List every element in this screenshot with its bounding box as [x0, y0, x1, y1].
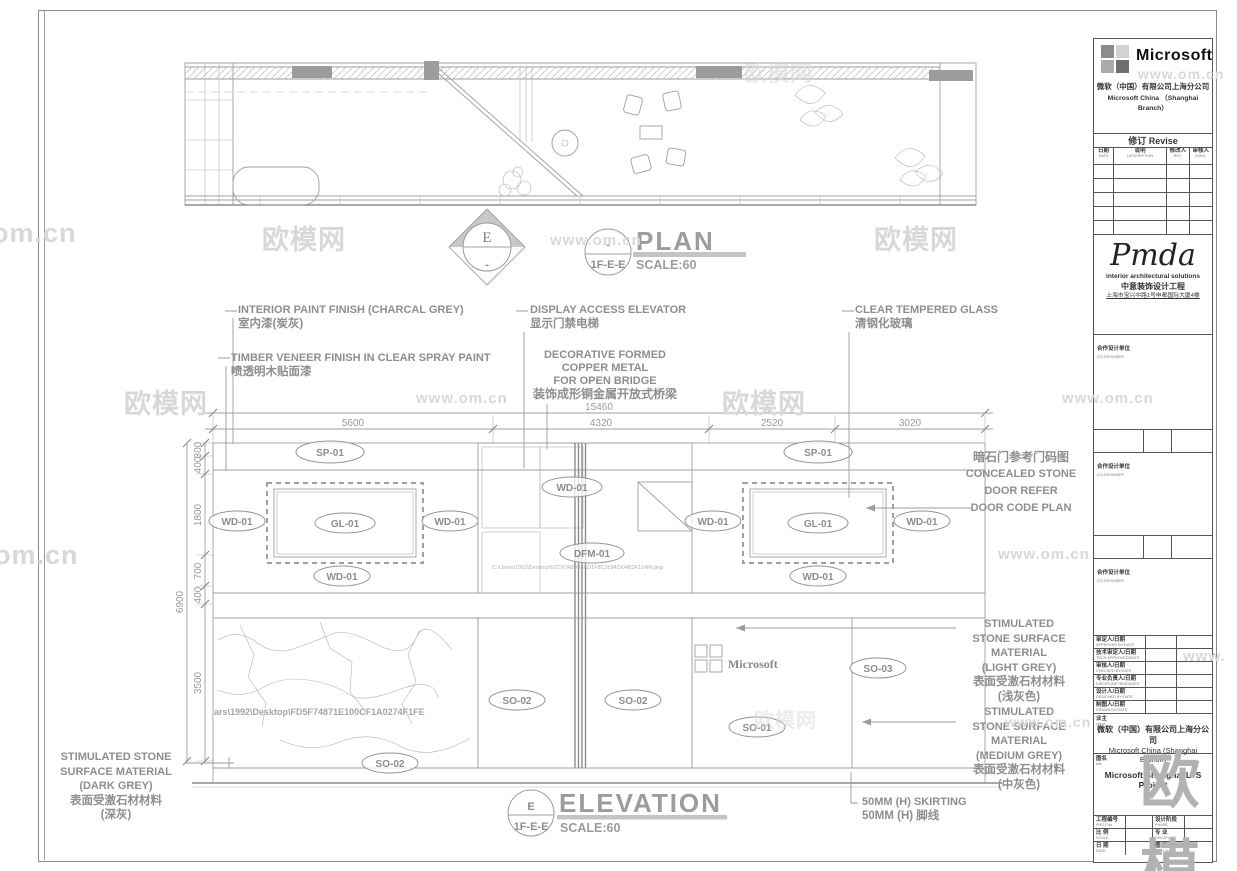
elev-ref-top: E [527, 801, 534, 813]
dim-v1800: 1800 [193, 503, 204, 526]
revise-empty-row [1094, 193, 1212, 207]
elev-title-text: ELEVATION [559, 788, 722, 818]
titleblock-logo-section: Microsoft 微软（中国）有限公司上海分公司 Microsoft Chin… [1094, 39, 1212, 134]
svg-text:DFM-01: DFM-01 [574, 549, 611, 560]
plan-drawing [185, 61, 976, 206]
svg-text:GL-01: GL-01 [331, 519, 360, 530]
svg-text:SO-02: SO-02 [619, 696, 648, 707]
sign-row: 技术审定人/日期TECH.APPROVED/DATE [1094, 649, 1212, 662]
co-designer-box: 合作设计单位 CO-DESIGNER [1094, 453, 1212, 536]
elevation-logo-text: Microsoft [728, 657, 778, 671]
revise-empty-row [1094, 165, 1212, 179]
note-stone-light-grey: STIMULATED STONE SURFACE MATERIAL (LIGHT… [949, 617, 1089, 704]
svg-text:WD-01: WD-01 [802, 572, 834, 583]
tag-wd01: WD-01 [894, 511, 950, 531]
note-display-elevator: DISPLAY ACCESS ELEVATOR 显示门禁电梯 [530, 303, 686, 331]
tag-gl01: GL-01 [315, 513, 375, 533]
plan-furniture [623, 91, 686, 175]
tag-so02: SO-02 [605, 690, 661, 710]
client-section: 业主 client 微软（中国）有限公司上海分公司 Microsoft Chin… [1094, 714, 1212, 754]
svg-text:SO-03: SO-03 [864, 664, 893, 675]
sign-row: 专业负责人/日期DISCIPLINE HEAD/DATE [1094, 675, 1212, 688]
company-name-en: Microsoft China （Shanghai Branch） [1094, 92, 1212, 112]
revise-columns: 日期 DATE 说明 DESCRIPTION 修改人 REV. 审核人 CHKD… [1094, 148, 1212, 165]
dim-total: 15460 [585, 402, 613, 413]
titleblock-bottom-grid: 工程编号PROJ No. 设计阶段PHASE 比 例SCALE 专 业DISCI… [1094, 816, 1212, 855]
company-name-cn: 微软（中国）有限公司上海分公司 [1094, 81, 1212, 92]
co-designer-row [1094, 536, 1212, 559]
elevation-title: E 1F-E-E ELEVATION SCALE:60 [508, 788, 727, 836]
elevation-microsoft-logo: Microsoft [695, 645, 778, 672]
elev-scale: SCALE:60 [560, 821, 620, 835]
svg-text:SP-01: SP-01 [316, 448, 344, 459]
dim-vtotal: 6900 [175, 590, 186, 613]
tag-sp01: SP-01 [296, 441, 364, 463]
tag-so03: SO-03 [850, 658, 906, 678]
note-concealed-door: 暗石门参考门码图 CONCEALED STONE DOOR REFER DOOR… [952, 449, 1090, 517]
elevation-drawing: Microsoft [192, 443, 1002, 787]
svg-text:WD-01: WD-01 [221, 517, 253, 528]
tag-gl01: GL-01 [788, 513, 848, 533]
tag-wd01: WD-01 [314, 566, 370, 586]
sign-row: 审核人/日期CHECKED BY/DATE [1094, 662, 1212, 675]
section-marker: E - [449, 209, 525, 285]
dimensions-top: 5600 4320 2520 3020 15460 [205, 402, 993, 443]
plan-plants [499, 85, 943, 196]
note-tempered-glass: CLEAR TEMPERED GLASS 清钢化玻璃 [855, 303, 998, 331]
marble-veins [218, 622, 470, 752]
tag-sp01: SP-01 [784, 441, 852, 463]
tag-wd01: WD-01 [209, 511, 265, 531]
revise-header: 修订 Revise [1094, 134, 1212, 148]
note-stone-dark-grey: STIMULATED STONE SURFACE MATERIAL (DARK … [40, 750, 192, 823]
title-block: Microsoft 微软（中国）有限公司上海分公司 Microsoft Chin… [1093, 38, 1213, 863]
elev-ref-bottom: 1F-E-E [514, 821, 549, 833]
plan-ref-bottom: 1F-E-E [591, 259, 626, 271]
dim-2520: 2520 [761, 418, 784, 429]
svg-text:SP-01: SP-01 [804, 448, 832, 459]
svg-text:WD-01: WD-01 [434, 517, 466, 528]
svg-text:SO-02: SO-02 [503, 696, 532, 707]
dim-5600: 5600 [342, 418, 365, 429]
designer-name-cn: 中意装饰设计工程 [1094, 281, 1212, 292]
revise-empty-row [1094, 179, 1212, 193]
dim-v400b: 400 [193, 586, 204, 603]
tag-so01: SO-01 [729, 717, 785, 737]
designer-address: 上海市宝兴中路1号申都国际大厦4楼 [1094, 292, 1212, 301]
drawing-title-section: 图名 title Microsoft Shanghai LTS Project [1094, 754, 1212, 816]
tag-so02: SO-02 [362, 753, 418, 773]
svg-text:WD-01: WD-01 [697, 517, 729, 528]
note-stone-medium-grey: STIMULATED STONE SURFACE MATERIAL (MEDIU… [949, 705, 1089, 792]
tag-wd01: WD-01 [422, 511, 478, 531]
client-name-cn: 微软（中国）有限公司上海分公司 [1096, 724, 1210, 746]
revise-empty-row [1094, 221, 1212, 235]
co-designer-box: 合作设计单位 CO-DESIGNER [1094, 335, 1212, 430]
designer-subtitle: interior architectural solutions [1094, 273, 1212, 281]
tag-dfm01: DFM-01 [560, 543, 624, 563]
dim-v3500: 3500 [193, 671, 204, 694]
dimensions-left: 300 400 1800 700 400 3500 6900 [175, 439, 213, 765]
co-designer-box: 合作设计单位 CO-DESIGNER [1094, 559, 1212, 636]
note-skirting: 50MM (H) SKIRTING 50MM (H) 脚线 [862, 795, 967, 823]
sign-row: 设计人/日期DESIGNED BY/DATE [1094, 688, 1212, 701]
svg-text:WD-01: WD-01 [556, 483, 588, 494]
dim-v700: 700 [193, 562, 204, 579]
note-copper-metal: DECORATIVE FORMED COPPER METAL FOR OPEN … [505, 349, 705, 401]
svg-text:SO-01: SO-01 [743, 723, 772, 734]
section-sub: - [485, 259, 489, 271]
svg-text:GL-01: GL-01 [804, 519, 833, 530]
embedded-file-path: C:\Users\1992\Desktop\62C97A8D8FAD1F8C36… [492, 565, 690, 571]
plan-title-text: PLAN [636, 226, 715, 256]
plan-title: - 1F-E-E PLAN SCALE:60 [585, 226, 746, 275]
tag-wd01: WD-01 [790, 566, 846, 586]
note-interior-paint: INTERIOR PAINT FINISH (CHARCAL GREY) 室内漆… [238, 303, 464, 331]
revise-empty-row [1094, 207, 1212, 221]
drawing-sheet: E - - 1F-E-E PLAN SCALE:60 E 1F-E-E ELEV… [0, 0, 1237, 871]
dim-v300: 300 [193, 441, 204, 458]
svg-text:WD-01: WD-01 [326, 572, 358, 583]
microsoft-logo-icon [1101, 45, 1129, 73]
plan-ref-top: - [606, 239, 610, 251]
sign-row: 制图人/日期DRAWN BY/DATE [1094, 701, 1212, 714]
co-designer-row [1094, 430, 1212, 453]
section-letter: E [482, 230, 491, 246]
tag-wd01: WD-01 [542, 477, 602, 497]
svg-text:WD-01: WD-01 [906, 517, 938, 528]
embedded-file-path: ars\1992\Desktop\FD5F74871E100CF1A0274F1… [214, 707, 474, 717]
tag-so02: SO-02 [489, 690, 545, 710]
plan-scale: SCALE:60 [636, 258, 696, 272]
sign-row: 审定人/日期APPROVED BY/DATE [1094, 636, 1212, 649]
designer-logo-section: Pmda interior architectural solutions 中意… [1094, 235, 1212, 335]
dim-3020: 3020 [899, 418, 922, 429]
svg-text:SO-02: SO-02 [376, 759, 405, 770]
dim-4320: 4320 [590, 418, 613, 429]
tag-wd01: WD-01 [685, 511, 741, 531]
dim-v400a: 400 [193, 456, 204, 473]
note-timber-veneer: TIMBER VENEER FINISH IN CLEAR SPRAY PAIN… [231, 351, 491, 379]
designer-script-logo: Pmda [1094, 239, 1212, 273]
project-name: Microsoft Shanghai LTS Project [1096, 756, 1210, 790]
brand-name: Microsoft [1136, 47, 1213, 65]
